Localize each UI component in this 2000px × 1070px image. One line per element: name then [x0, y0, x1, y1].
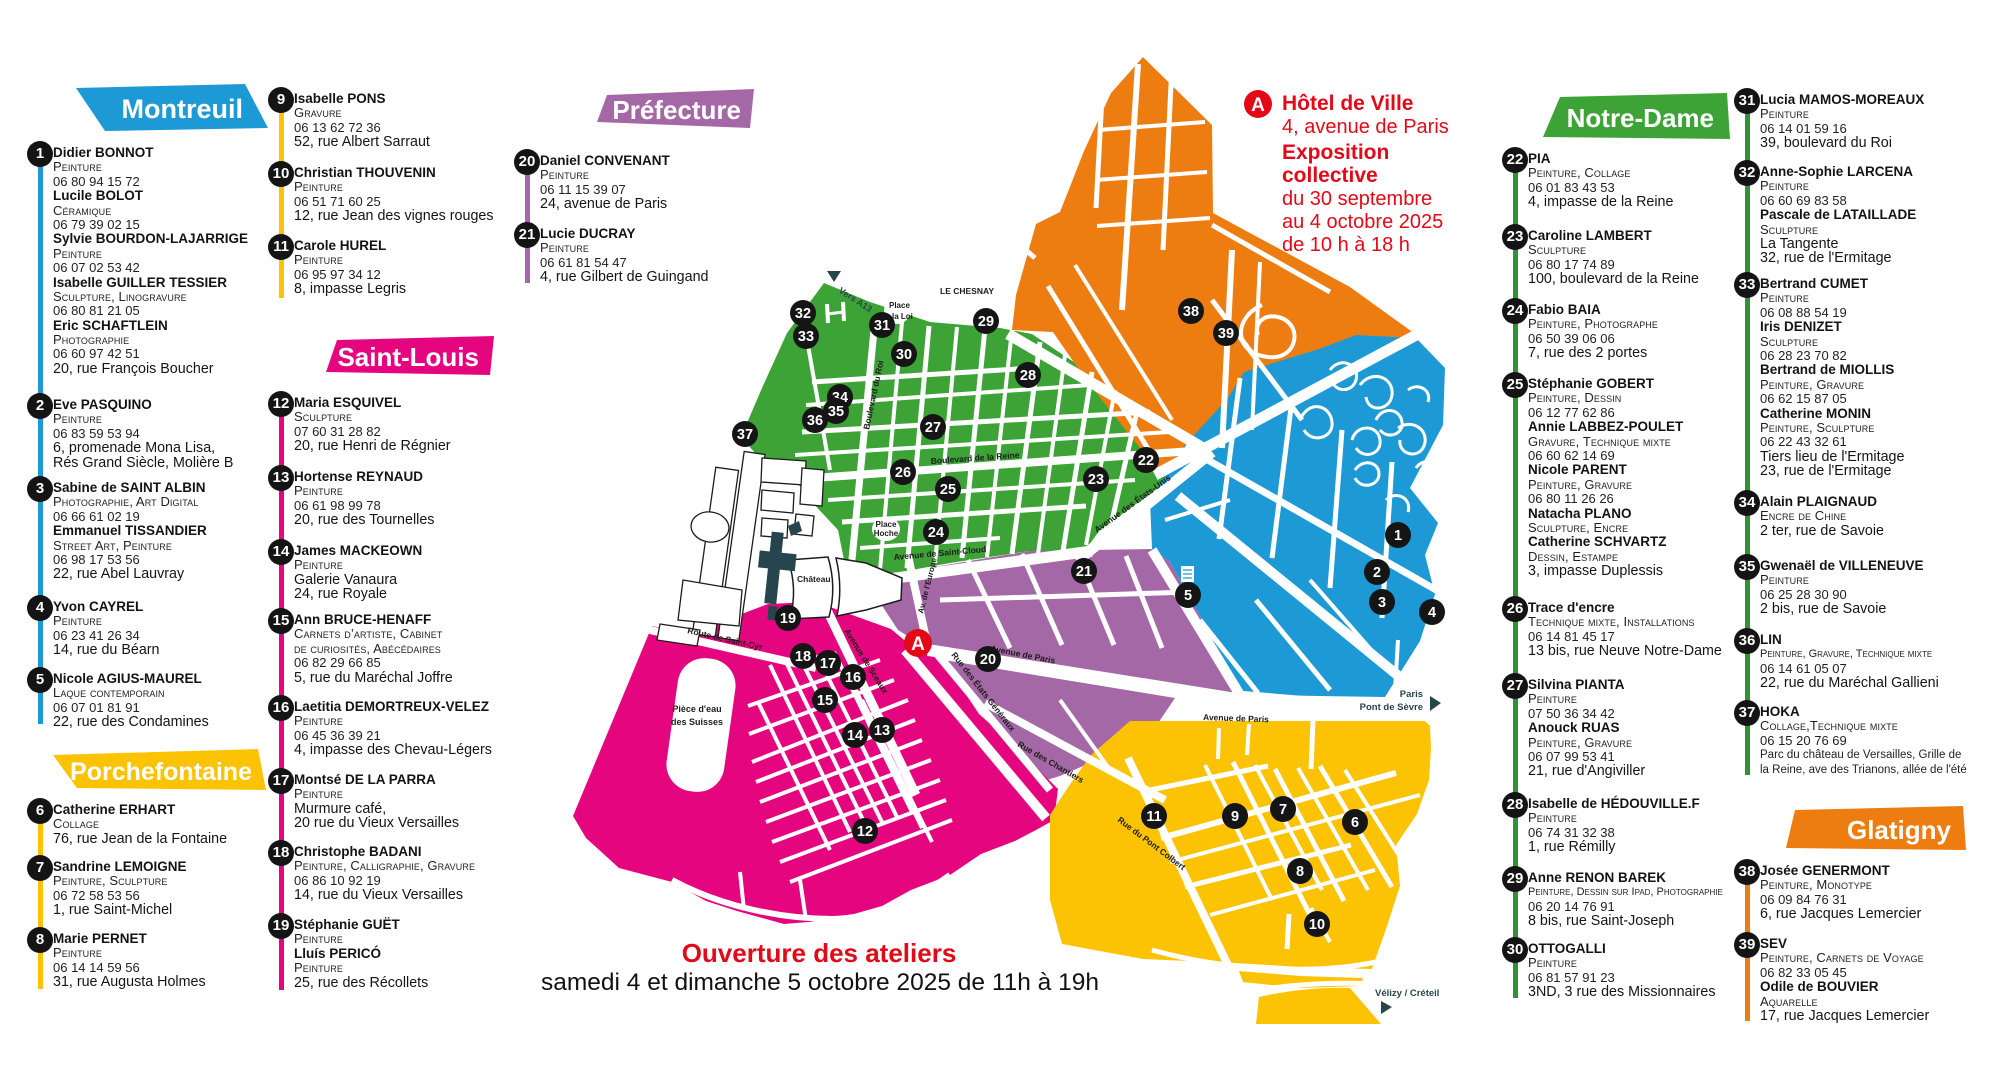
- svg-text:1: 1: [1394, 528, 1402, 544]
- svg-text:Château: Château: [797, 574, 831, 584]
- svg-text:A: A: [1251, 95, 1265, 116]
- svg-text:A: A: [911, 634, 925, 655]
- svg-text:35: 35: [828, 404, 844, 420]
- svg-text:31: 31: [874, 318, 890, 334]
- svg-text:la Loi: la Loi: [892, 312, 913, 321]
- svg-text:Porchefontaine: Porchefontaine: [70, 758, 252, 786]
- svg-text:10: 10: [1309, 917, 1325, 933]
- svg-text:4, avenue de Paris: 4, avenue de Paris: [1282, 116, 1449, 138]
- svg-text:22: 22: [1138, 453, 1154, 469]
- svg-text:25: 25: [940, 482, 956, 498]
- svg-text:Ouverture des ateliers: Ouverture des ateliers: [682, 938, 957, 968]
- svg-text:Place: Place: [876, 520, 897, 529]
- svg-text:6: 6: [1351, 815, 1359, 831]
- svg-text:17: 17: [820, 656, 836, 672]
- svg-text:26: 26: [895, 465, 911, 481]
- svg-text:Hoche: Hoche: [874, 529, 899, 538]
- svg-text:38: 38: [1183, 304, 1199, 320]
- svg-text:39: 39: [1218, 326, 1234, 342]
- svg-text:Paris: Paris: [1400, 689, 1423, 700]
- svg-text:Vélizy / Créteil: Vélizy / Créteil: [1375, 988, 1439, 999]
- svg-text:12: 12: [857, 824, 873, 840]
- svg-text:23: 23: [1088, 472, 1104, 488]
- svg-text:21: 21: [1076, 564, 1092, 580]
- svg-text:5: 5: [1184, 588, 1192, 604]
- svg-text:Hôtel de Ville: Hôtel de Ville: [1282, 92, 1414, 115]
- svg-text:des Suisses: des Suisses: [671, 717, 723, 727]
- svg-text:14: 14: [847, 728, 863, 744]
- svg-text:LE CHESNAY: LE CHESNAY: [940, 286, 994, 296]
- svg-text:Préfecture: Préfecture: [612, 95, 741, 125]
- svg-text:Pont de Sèvre: Pont de Sèvre: [1360, 702, 1423, 713]
- svg-text:au 4 octobre 2025: au 4 octobre 2025: [1282, 211, 1443, 233]
- svg-text:19: 19: [780, 611, 796, 627]
- svg-text:3: 3: [1378, 595, 1386, 611]
- svg-text:16: 16: [845, 670, 861, 686]
- svg-text:Place: Place: [889, 301, 910, 310]
- svg-text:du 30 septembre: du 30 septembre: [1282, 188, 1432, 210]
- svg-text:37: 37: [737, 427, 753, 443]
- svg-text:36: 36: [807, 413, 823, 429]
- svg-text:29: 29: [978, 314, 994, 330]
- svg-text:8: 8: [1296, 864, 1304, 880]
- svg-text:Notre-Dame: Notre-Dame: [1567, 103, 1714, 133]
- svg-text:Glatigny: Glatigny: [1847, 815, 1952, 845]
- svg-text:7: 7: [1279, 802, 1287, 818]
- svg-text:28: 28: [1020, 368, 1036, 384]
- svg-text:33: 33: [798, 329, 814, 345]
- svg-text:Montreuil: Montreuil: [122, 94, 244, 124]
- svg-text:9: 9: [1231, 809, 1239, 825]
- svg-text:32: 32: [795, 306, 811, 322]
- svg-text:4: 4: [1428, 605, 1436, 621]
- svg-text:11: 11: [1146, 809, 1161, 825]
- svg-text:18: 18: [795, 649, 811, 665]
- svg-text:2: 2: [1373, 565, 1381, 581]
- svg-text:27: 27: [925, 420, 941, 436]
- svg-text:collective: collective: [1282, 164, 1378, 187]
- svg-text:20: 20: [980, 652, 996, 668]
- svg-text:de 10 h à 18 h: de 10 h à 18 h: [1282, 234, 1410, 256]
- svg-text:24: 24: [928, 525, 944, 541]
- svg-text:15: 15: [817, 693, 833, 709]
- svg-text:samedi 4 et dimanche 5 octobre: samedi 4 et dimanche 5 octobre 2025 de 1…: [541, 969, 1099, 996]
- svg-text:Exposition: Exposition: [1282, 141, 1389, 164]
- svg-text:Pièce d'eau: Pièce d'eau: [672, 704, 721, 714]
- svg-text:Saint-Louis: Saint-Louis: [337, 342, 479, 372]
- svg-text:13: 13: [874, 723, 890, 739]
- svg-text:30: 30: [896, 347, 912, 363]
